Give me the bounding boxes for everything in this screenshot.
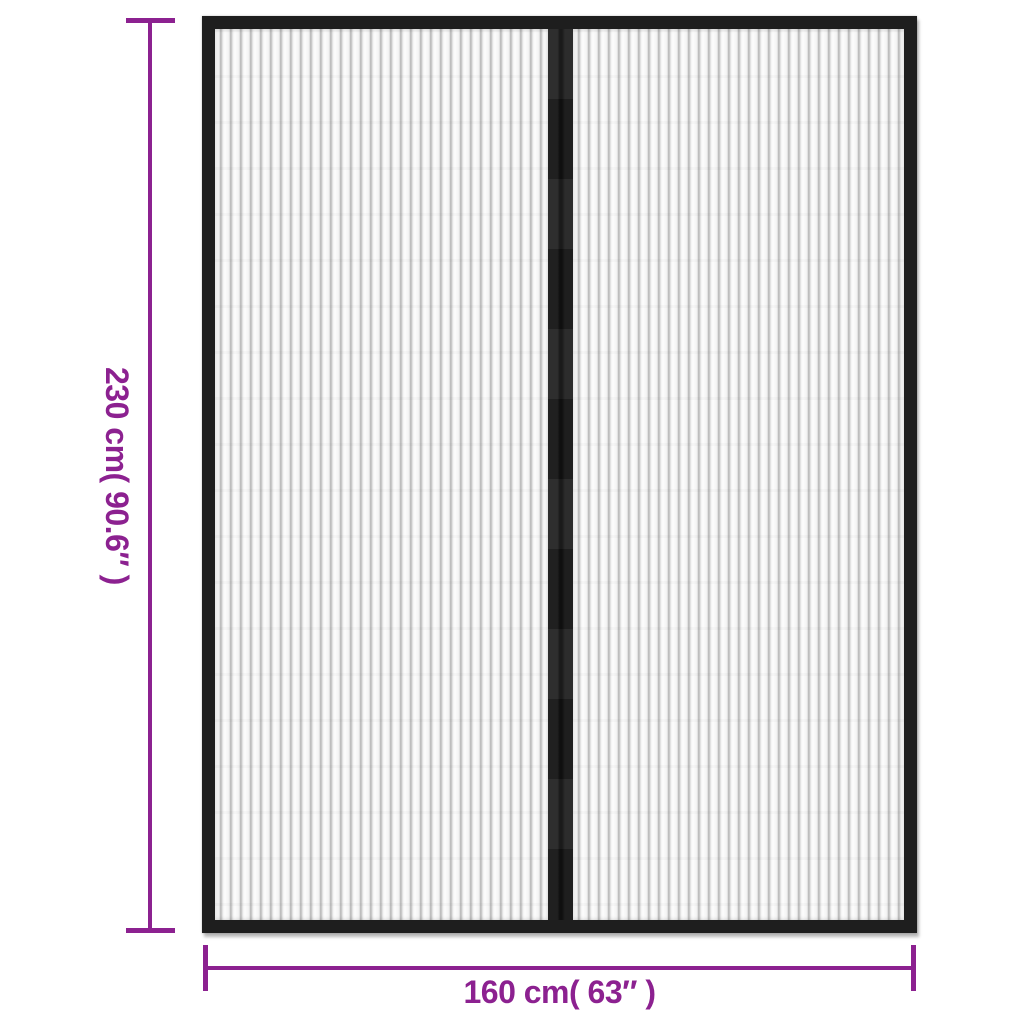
width-dimension-label: 160 cm( 63″ ) [205,972,914,1012]
center-magnet-strip [548,29,573,920]
mesh-panel-right [573,29,904,920]
screen-door-frame [202,16,917,933]
product-diagram: 230 cm( 90.6″ ) 160 cm( 63″ ) [0,0,1024,1024]
width-dimension-line [205,966,914,970]
mesh-panel-left [215,29,548,920]
height-dimension-label: 230 cm( 90.6″ ) [90,20,144,931]
height-dimension-line [148,20,152,931]
